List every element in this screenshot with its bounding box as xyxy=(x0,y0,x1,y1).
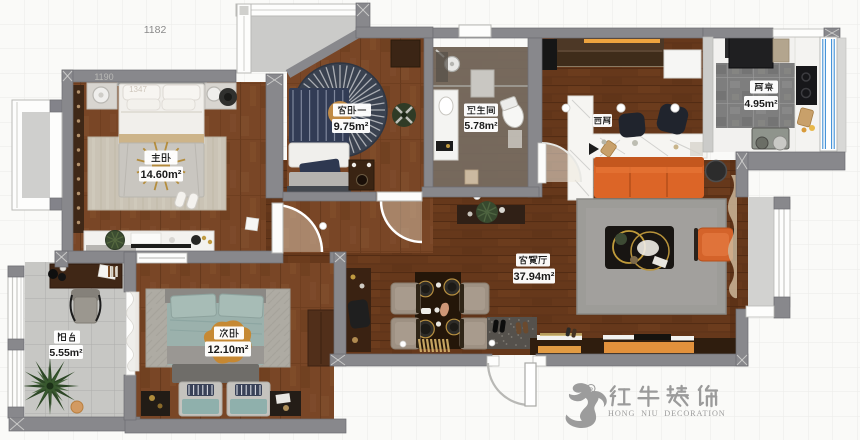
svg-text:14.60m²: 14.60m² xyxy=(141,169,182,181)
svg-text:5.55m²: 5.55m² xyxy=(49,347,83,359)
svg-text:37.94m²: 37.94m² xyxy=(514,271,555,283)
svg-text:HONG NIU DECORATION: HONG NIU DECORATION xyxy=(608,409,726,418)
svg-text:4.95m²: 4.95m² xyxy=(744,98,778,110)
svg-text:12.10m²: 12.10m² xyxy=(208,344,249,356)
svg-text:1347: 1347 xyxy=(129,85,147,94)
svg-text:5.78m²: 5.78m² xyxy=(464,120,498,132)
svg-text:9.75m²: 9.75m² xyxy=(334,121,369,133)
svg-text:1182: 1182 xyxy=(144,24,167,36)
svg-text:1190: 1190 xyxy=(94,72,113,82)
svg-text:R: R xyxy=(589,387,593,393)
